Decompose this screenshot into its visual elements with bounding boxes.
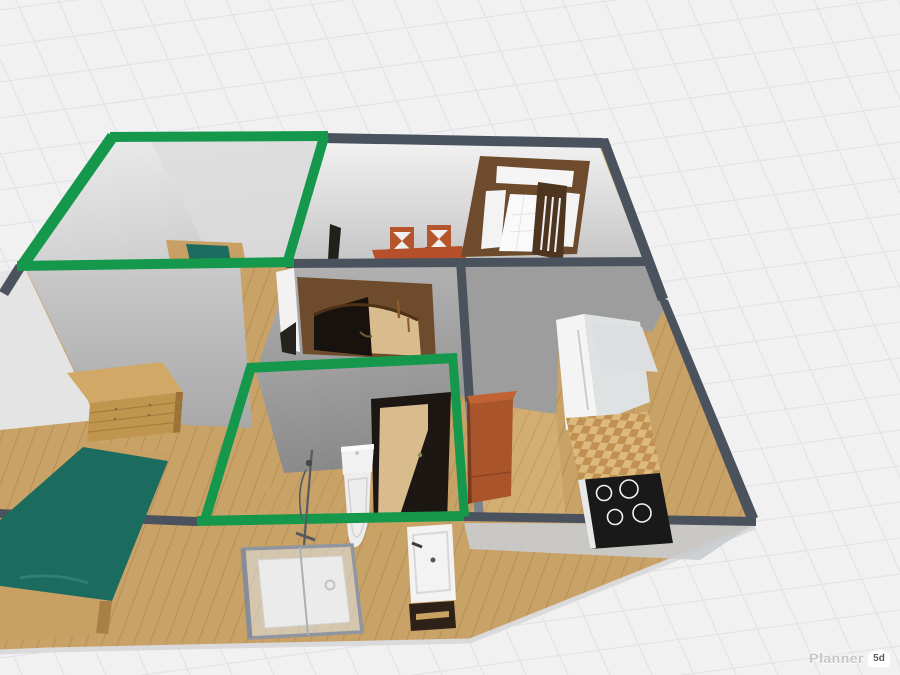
entry-door-leaf[interactable] <box>532 182 567 260</box>
kitchen-counter[interactable] <box>566 412 662 484</box>
sink-drain <box>431 558 436 563</box>
entry-door[interactable] <box>461 156 590 260</box>
flush-button <box>355 451 359 455</box>
selected-north-cap[interactable] <box>110 131 328 142</box>
watermark-brand-text: Planner <box>809 650 864 666</box>
room-living-dining[interactable] <box>291 140 644 268</box>
planner5d-logo-icon: 5d <box>868 649 890 667</box>
door-handle <box>418 453 422 457</box>
planner5d-watermark: Planner 5d <box>809 649 890 667</box>
room-bedroom-left[interactable] <box>0 266 252 442</box>
sink-vanity[interactable] <box>407 524 456 631</box>
bathroom-door[interactable] <box>371 392 451 532</box>
planner-3d-canvas[interactable]: Planner 5d <box>0 0 900 675</box>
arched-door[interactable] <box>297 277 436 360</box>
stove[interactable] <box>578 473 673 549</box>
floorplan-scene[interactable] <box>0 0 900 675</box>
kitchen-cabinet[interactable] <box>467 391 517 504</box>
shower-enclosure[interactable] <box>243 545 362 638</box>
